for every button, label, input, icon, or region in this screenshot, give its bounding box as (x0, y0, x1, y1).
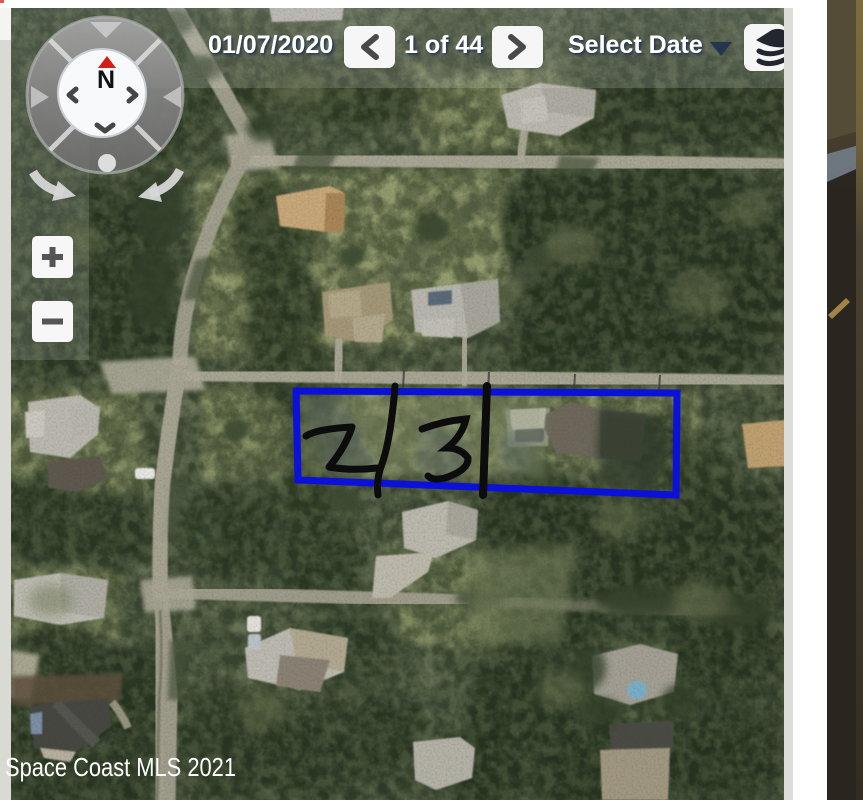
svg-text:Space Coast MLS 2021: Space Coast MLS 2021 (5, 752, 236, 782)
svg-text:Select Date: Select Date (568, 31, 703, 59)
svg-text:N: N (97, 66, 115, 94)
svg-text:1 of 44: 1 of 44 (404, 31, 483, 59)
svg-text:01/07/2020: 01/07/2020 (208, 31, 333, 59)
